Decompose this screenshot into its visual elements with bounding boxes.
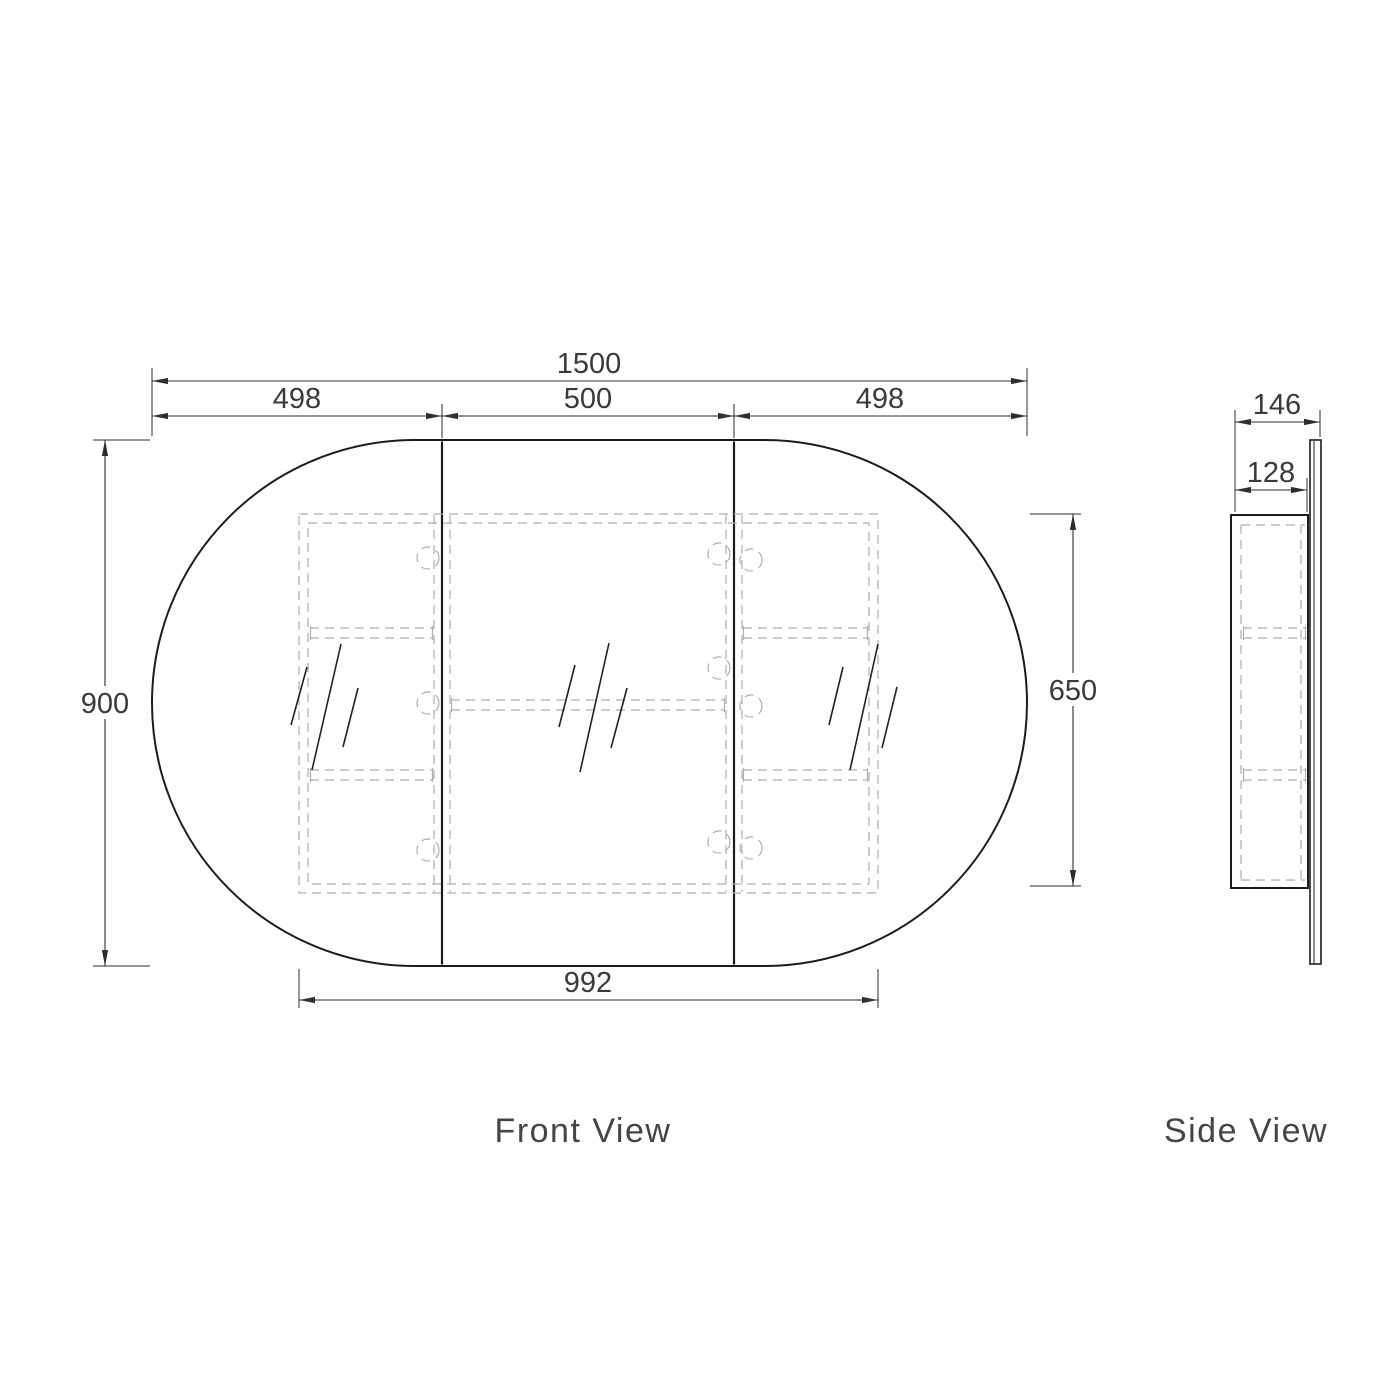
glass-slash [312,644,341,770]
hinge-circle [417,547,439,569]
hinge-circle [740,695,762,717]
cabinet-profile [1231,515,1308,888]
hinge-circle [417,692,439,714]
side-hidden-lines [1241,525,1306,880]
glass-slash [343,688,358,747]
glass-slash [611,688,627,748]
hinge-circle [740,549,762,571]
side-view: 146 128 Side View [1164,389,1328,1150]
dimension-overall-width: 1500 [557,348,622,380]
glass-slash [829,667,843,725]
front-view: 1500 498 500 498 900 650 [77,348,1102,1150]
hinge-circle [417,839,439,861]
glass-slash [580,643,609,772]
glass-slash [850,644,878,770]
cabinet-drawing: 1500 498 500 498 900 650 [0,0,1400,1400]
hinge-circle [708,831,730,853]
technical-drawing-page: 1500 498 500 498 900 650 [0,0,1400,1400]
front-view-dimensions: 1500 498 500 498 900 650 [77,348,1102,1008]
mirror-outline [152,440,1027,966]
side-view-dimensions: 146 128 [1235,389,1320,512]
dimension-right-door-width: 498 [856,383,904,415]
front-view-label: Front View [495,1112,672,1150]
carcass-hidden-outline [299,514,878,893]
carcass-outer-dashed [299,514,878,893]
dimension-cabinet-width: 992 [564,967,612,999]
hinge-circles [417,543,762,861]
hinge-circle [740,837,762,859]
dimension-left-door-width: 498 [273,383,321,415]
dimension-overall-depth: 146 [1253,389,1301,421]
mirror-panel-profile [1310,440,1321,964]
glass-slash [559,665,575,727]
dimension-cabinet-depth: 128 [1247,457,1295,489]
hinge-circle [708,543,730,565]
shelf-lines [310,626,868,782]
glass-reflection-marks [291,643,897,772]
dimension-center-door-width: 500 [564,383,612,415]
side-view-label: Side View [1164,1112,1328,1150]
hinge-circle [708,657,730,679]
carcass-inner-dashed [308,523,869,884]
dimension-cabinet-height: 650 [1049,675,1097,707]
dimension-overall-height: 900 [81,688,129,720]
glass-slash [882,687,897,748]
